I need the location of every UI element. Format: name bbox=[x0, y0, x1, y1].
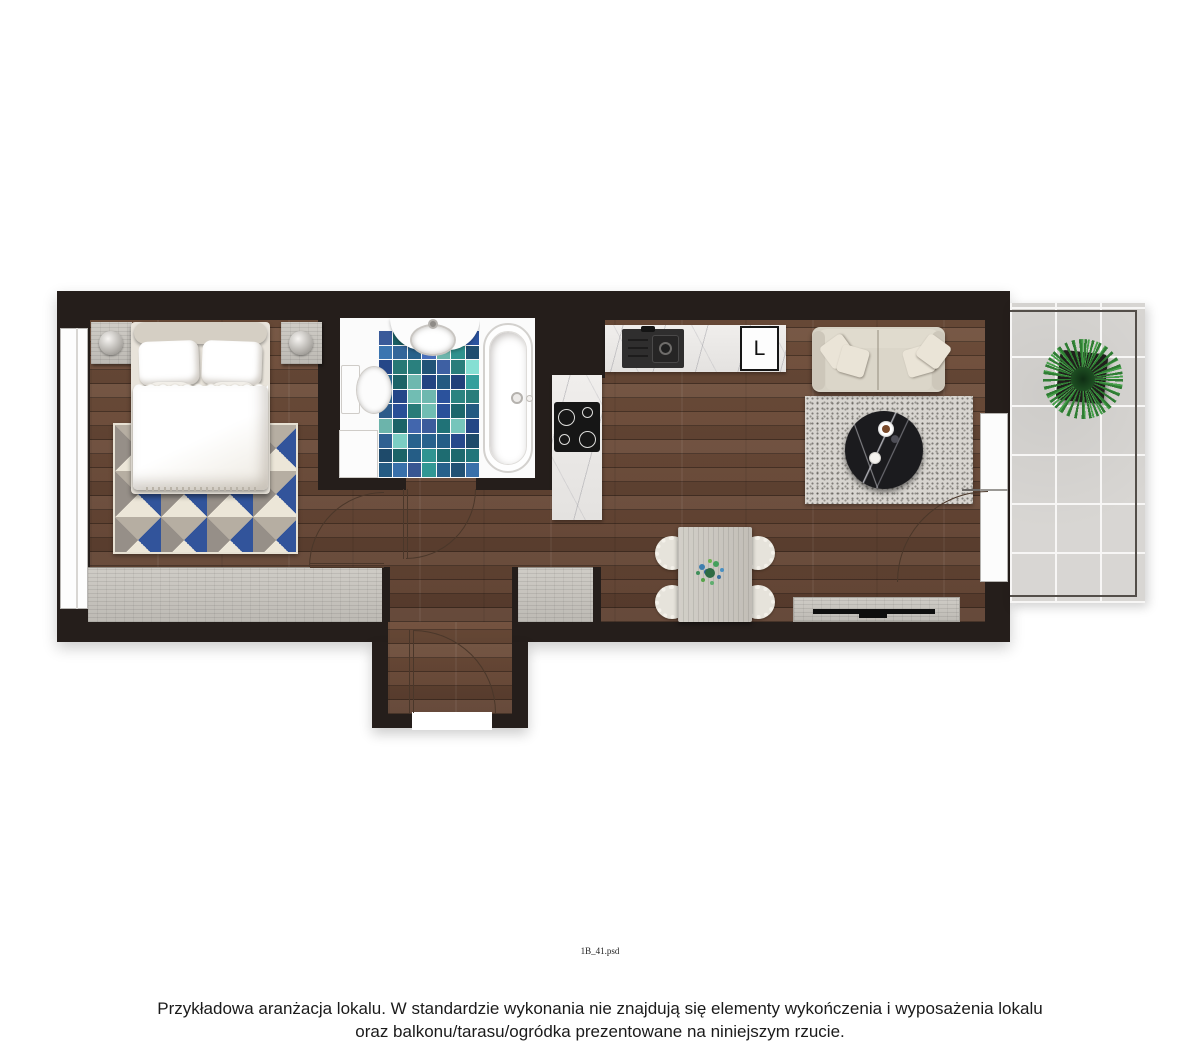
entry-door-opening bbox=[412, 712, 492, 730]
balcony-door-handle bbox=[962, 489, 980, 491]
toilet-bowl bbox=[356, 366, 392, 414]
coffee-cup-drink bbox=[882, 425, 890, 433]
bathtub-faucet-icon bbox=[511, 392, 523, 404]
disclaimer-line-2: oraz balkonu/tarasu/ogródka prezentowane… bbox=[0, 1022, 1200, 1042]
balcony-plant-core bbox=[1071, 367, 1095, 391]
entrance-door-leaf bbox=[409, 630, 414, 713]
fridge-label: L bbox=[754, 337, 766, 361]
bedroom-window bbox=[60, 328, 88, 609]
kitchen-sink-dial-icon bbox=[659, 342, 672, 355]
sofa-seam bbox=[877, 330, 879, 390]
tv-mount bbox=[859, 613, 887, 618]
bedroom-door-leaf bbox=[310, 563, 384, 568]
bed-foot-seam bbox=[146, 487, 256, 491]
floor-plan-scene: L 1B_41.psd Przykładowa aranżacja lokalu… bbox=[0, 0, 1200, 1060]
hob-burner-2 bbox=[582, 407, 593, 418]
hall-closet bbox=[518, 567, 593, 622]
wall-jamb-niche-right bbox=[593, 567, 601, 622]
dining-table bbox=[678, 527, 752, 622]
wall-bathroom-kitchen-block bbox=[535, 291, 605, 378]
dining-table-plant bbox=[705, 568, 715, 578]
kitchen-faucet-icon bbox=[641, 326, 655, 332]
bathroom-sink-faucet-icon bbox=[428, 319, 438, 329]
coffee-table-dish bbox=[869, 452, 881, 464]
bedroom-wardrobe bbox=[88, 567, 382, 622]
disclaimer-line-1: Przykładowa aranżacja lokalu. W standard… bbox=[0, 999, 1200, 1019]
drawing-filename: 1B_41.psd bbox=[0, 946, 1200, 956]
lamp-right bbox=[289, 331, 313, 355]
hob-burner-3 bbox=[559, 434, 570, 445]
fridge: L bbox=[740, 326, 779, 371]
wall-bathroom-bottom-right bbox=[476, 478, 552, 490]
hob-burner-4 bbox=[579, 431, 596, 448]
bathtub-drain-icon bbox=[526, 395, 533, 402]
wall-bathroom-bottom-left bbox=[318, 478, 406, 490]
bed-duvet bbox=[133, 386, 268, 490]
wall-bathroom-kitchen-strip bbox=[535, 378, 552, 479]
sofa-arm-left bbox=[812, 331, 825, 390]
hob-burner-1 bbox=[558, 409, 575, 426]
washing-machine bbox=[339, 430, 378, 478]
wall-jamb-corridor-left bbox=[382, 567, 390, 622]
lamp-left bbox=[99, 331, 123, 355]
bathroom-door-leaf bbox=[403, 489, 408, 559]
bedroom-window-frame-line bbox=[76, 328, 78, 609]
wall-bedroom-bathroom bbox=[318, 291, 340, 489]
kitchen-sink-drainer bbox=[628, 337, 648, 357]
